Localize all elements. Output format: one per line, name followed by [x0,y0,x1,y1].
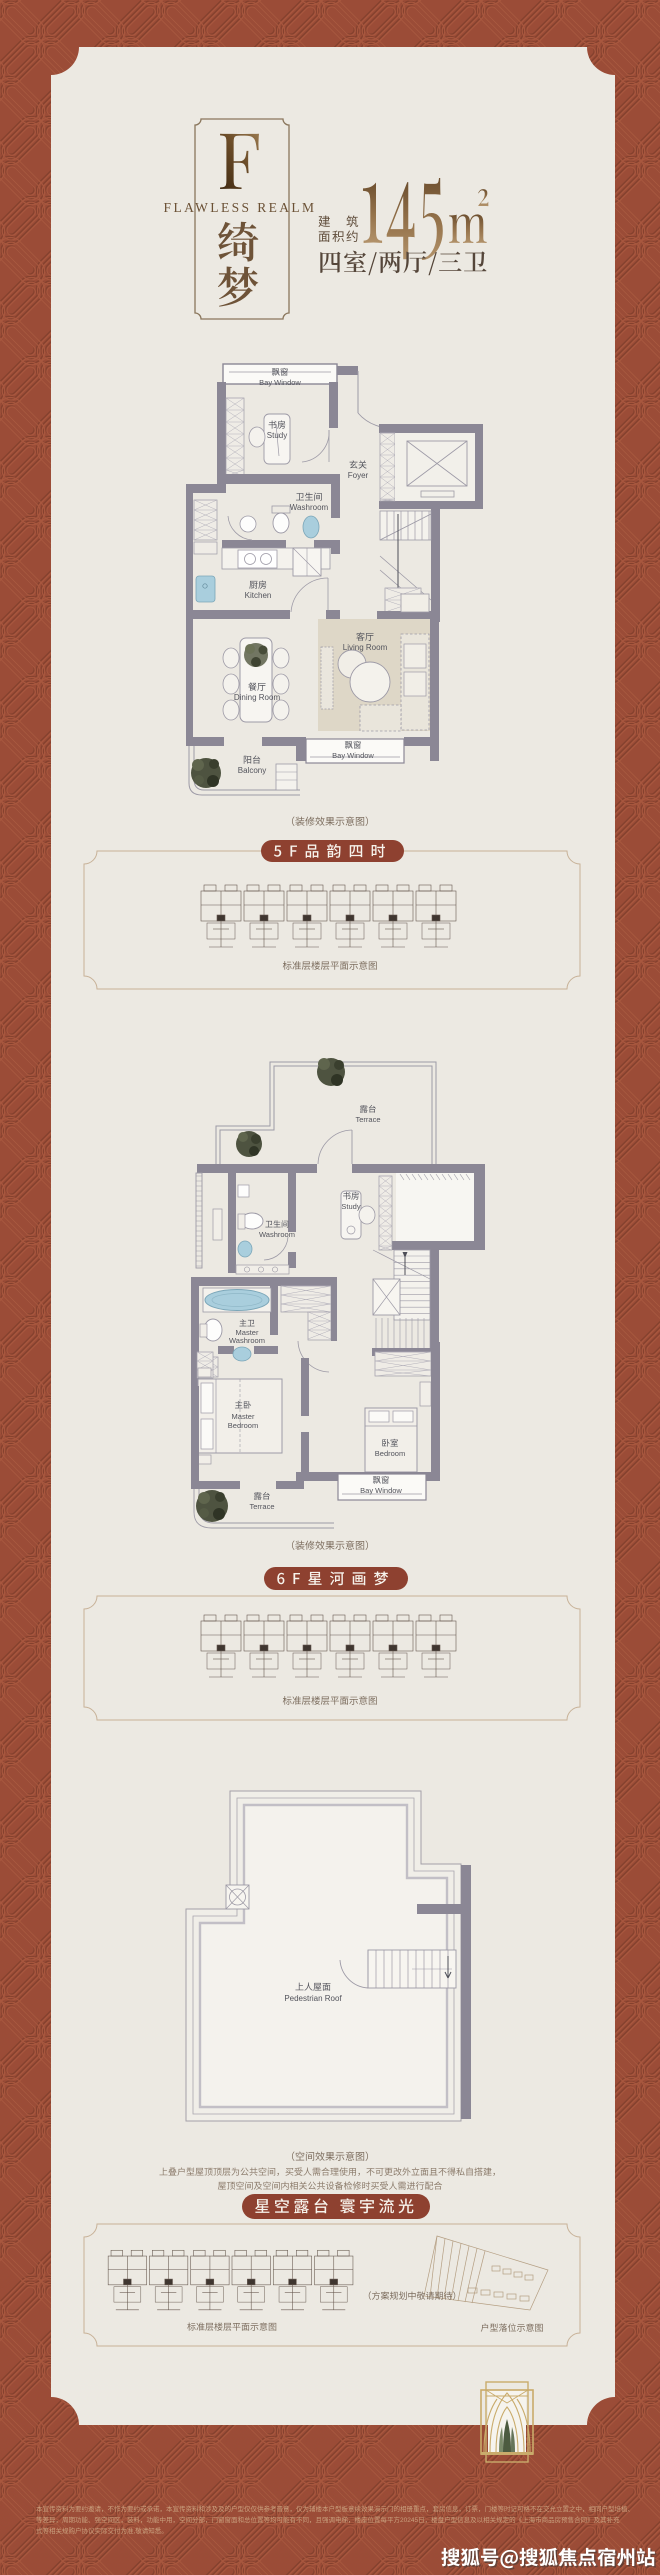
svg-text:本宣传资料为要约邀请，不作为要约或承诺，本宣传资料和涉及及的: 本宣传资料为要约邀请，不作为要约或承诺，本宣传资料和涉及及的户型仅仅供参考晋意，… [36,2504,634,2513]
svg-text:Study: Study [341,1202,360,1211]
svg-text:Dining Room: Dining Room [234,693,281,702]
svg-text:Bay Window: Bay Window [259,378,301,387]
svg-text:等差异，周期功能、强空间区，装料，功能中用，空间分部，门窗窗: 等差异，周期功能、强空间区，装料，功能中用，空间分部，门窗窗面和总位置等均可能有… [36,2515,620,2524]
svg-text:Bedroom: Bedroom [228,1421,258,1430]
svg-text:Pedestrian Roof: Pedestrian Roof [284,1994,342,2003]
svg-text:Balcony: Balcony [238,766,266,775]
svg-text:Foyer: Foyer [348,471,369,480]
svg-text:Bay Window: Bay Window [332,751,374,760]
svg-text:Terrace: Terrace [355,1115,380,1124]
svg-text:Master: Master [232,1412,255,1421]
svg-text:FLAWLESS REALM: FLAWLESS REALM [164,200,317,215]
svg-text:Bedroom: Bedroom [375,1449,405,1458]
svg-text:Washroom: Washroom [290,503,329,512]
svg-text:式等相关规购户协议实际交付为准,敬请知悉。: 式等相关规购户协议实际交付为准,敬请知悉。 [36,2526,168,2535]
svg-text:Terrace: Terrace [249,1502,274,1511]
svg-text:Washroom: Washroom [259,1230,295,1239]
svg-text:Study: Study [267,431,287,440]
svg-text:Bay Window: Bay Window [360,1486,402,1495]
svg-text:Washroom: Washroom [229,1336,265,1345]
svg-text:Living Room: Living Room [343,643,388,652]
svg-text:Kitchen: Kitchen [245,591,272,600]
